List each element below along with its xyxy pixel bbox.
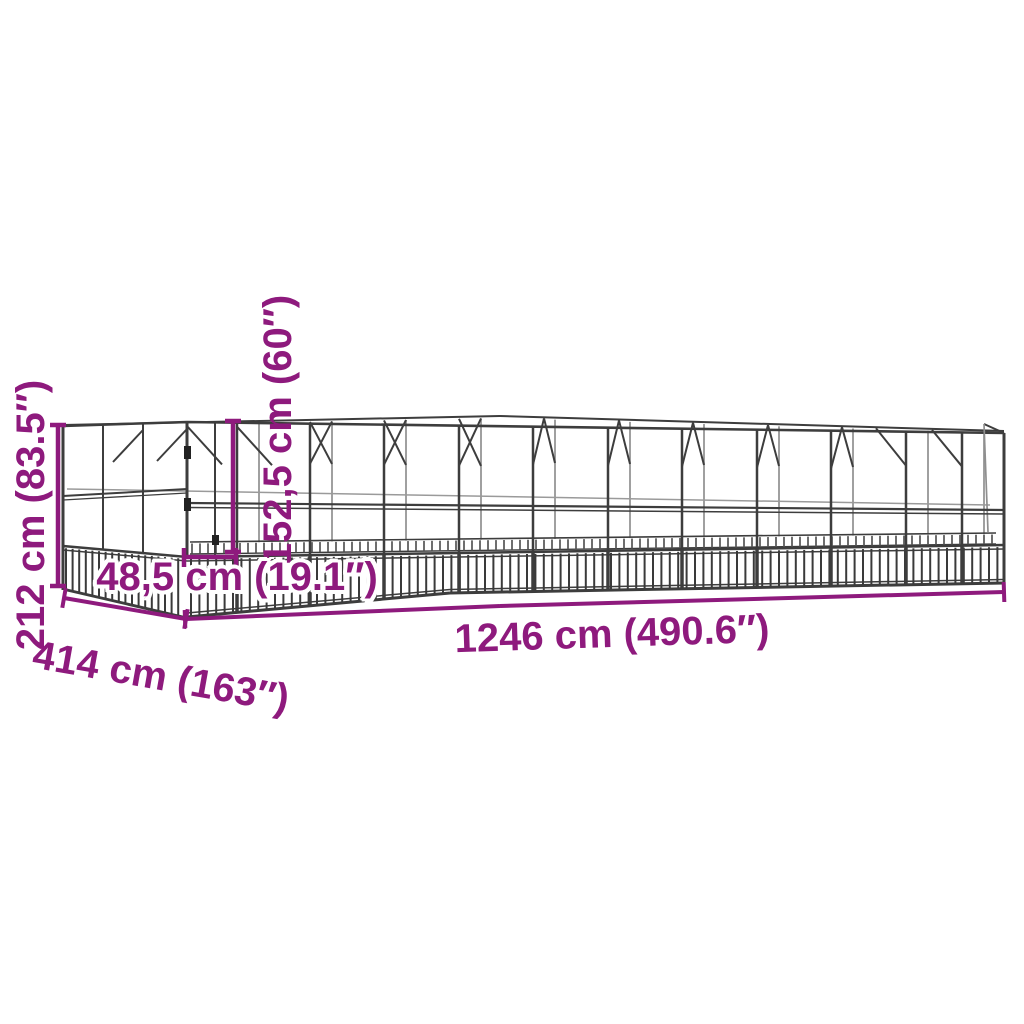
diagram-canvas: 212 cm (83.5″) 152,5 cm (60″) 48,5 cm (1… <box>0 0 1024 1024</box>
total-height-label: 212 cm (83.5″) <box>11 380 51 650</box>
door-height-label: 152,5 cm (60″) <box>258 295 298 565</box>
total-length-label: 1246 cm (490.6″) <box>454 609 770 659</box>
aviary-wireframe-drawing <box>0 0 1024 1024</box>
door-width-label: 48,5 cm (19.1″) <box>96 557 378 597</box>
door-height-dimension-line <box>225 421 241 552</box>
